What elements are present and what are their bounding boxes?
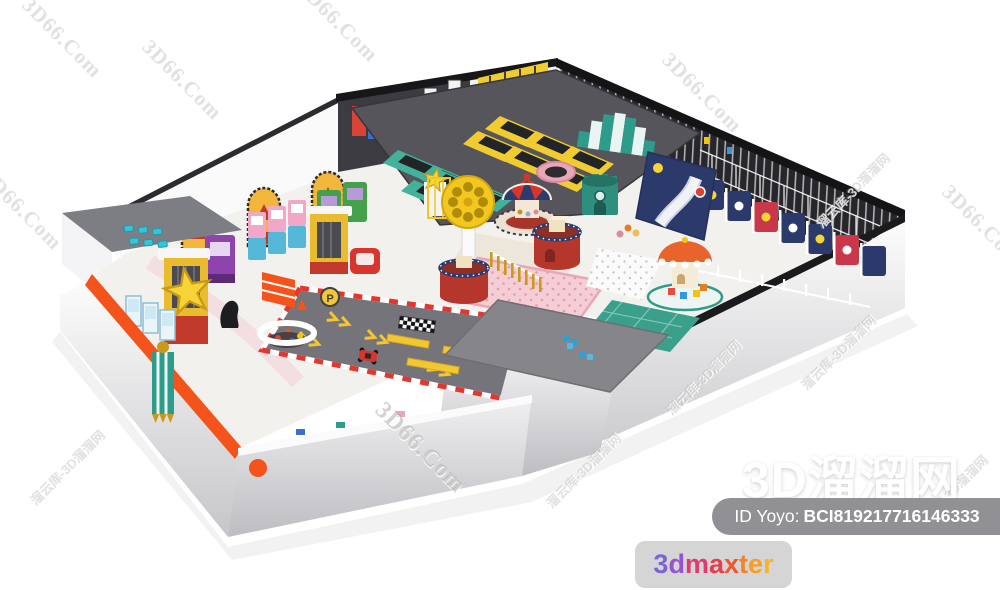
brand-logo: 3 d m a x t e r [635,541,792,588]
circus-tower [440,256,488,304]
model-id-value: BCI819217716146333 [804,506,980,527]
model-id-label: ID Yoyo: [734,506,799,527]
brand-letter: a [709,551,724,578]
orange-ball [249,459,267,477]
brand-letter: 3 [653,551,668,578]
castle-turret [582,174,618,215]
brand-letter: e [748,551,763,578]
brand-letter: m [685,551,709,578]
svg-text:P: P [326,293,333,305]
brand-letter: d [668,551,685,578]
star-pillar [306,206,352,274]
brand-letter: t [739,551,748,578]
brand-letter: x [724,551,739,578]
model-preview-image: P [0,0,1000,590]
model-id-badge: ID Yoyo: BCI819217716146333 [712,498,1000,535]
brand-letter: r [763,551,774,578]
parking-sign: P [321,288,339,306]
column-decor [152,341,174,423]
round-trampoline [537,162,575,182]
